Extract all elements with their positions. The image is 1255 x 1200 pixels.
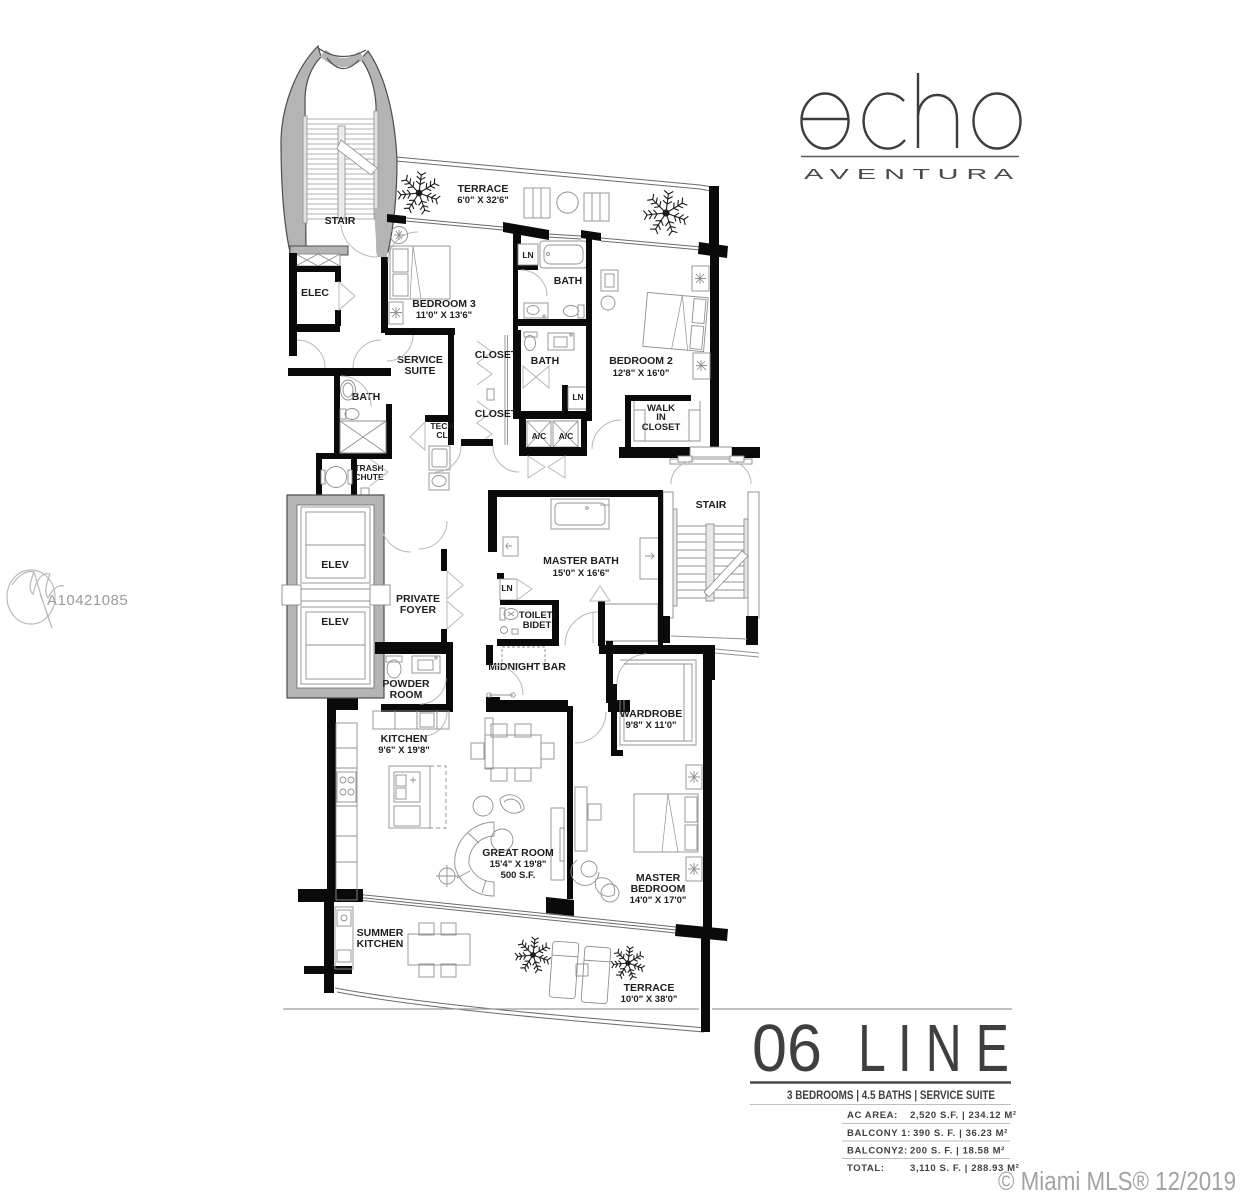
svg-text:A/C: A/C	[559, 431, 574, 441]
svg-text:BEDROOM 2: BEDROOM 2	[609, 355, 673, 367]
svg-text:STAIR: STAIR	[325, 215, 356, 227]
svg-text:SUITE: SUITE	[405, 365, 436, 377]
svg-text:ROOM: ROOM	[390, 689, 423, 701]
svg-text:L I N E: L I N E	[858, 1011, 1009, 1086]
svg-text:TOTAL:: TOTAL:	[847, 1163, 885, 1174]
svg-text:BALCONY2:: BALCONY2:	[847, 1146, 908, 1157]
svg-text:BIDET: BIDET	[523, 620, 552, 631]
svg-text:CHUTE: CHUTE	[354, 472, 384, 482]
svg-text:500 S.F.: 500 S.F.	[501, 870, 536, 881]
svg-text:11'0" X 13'6": 11'0" X 13'6"	[416, 310, 472, 321]
svg-text:CLOSET: CLOSET	[475, 408, 518, 420]
svg-text:A V E N T U R A: A V E N T U R A	[804, 167, 1014, 183]
svg-text:© Miami MLS® 12/2019: © Miami MLS® 12/2019	[998, 1168, 1236, 1196]
svg-text:15'0" X 16'6": 15'0" X 16'6"	[553, 568, 610, 579]
svg-text:LN: LN	[501, 583, 512, 593]
svg-text:A/C: A/C	[532, 431, 547, 441]
svg-text:WARDROBE: WARDROBE	[620, 708, 682, 720]
svg-text:AC AREA:: AC AREA:	[847, 1110, 898, 1121]
svg-text:15'4" X 19'8": 15'4" X 19'8"	[490, 859, 547, 870]
svg-text:BATH: BATH	[352, 391, 380, 403]
svg-text:MIDNIGHT BAR: MIDNIGHT BAR	[488, 661, 566, 673]
svg-text:GREAT ROOM: GREAT ROOM	[482, 847, 554, 859]
svg-text:LN: LN	[522, 250, 533, 260]
svg-text:BALCONY 1:: BALCONY 1:	[847, 1128, 911, 1139]
svg-text:390 S. F. | 36.23 M²: 390 S. F. | 36.23 M²	[913, 1128, 1008, 1139]
svg-text:06: 06	[752, 1011, 822, 1086]
svg-text:BEDROOM 3: BEDROOM 3	[412, 298, 476, 310]
svg-text:3 BEDROOMS | 4.5 BATHS | SERVI: 3 BEDROOMS | 4.5 BATHS | SERVICE SUITE	[787, 1090, 995, 1102]
svg-text:TERRACE: TERRACE	[458, 183, 509, 195]
svg-text:BATH: BATH	[531, 355, 559, 367]
svg-text:6'0" X 32'6": 6'0" X 32'6"	[457, 195, 509, 206]
svg-text:KITCHEN: KITCHEN	[381, 733, 428, 745]
svg-text:ELEV: ELEV	[321, 559, 348, 571]
svg-text:LN: LN	[572, 392, 583, 402]
svg-text:CL: CL	[436, 430, 447, 440]
svg-text:BEDROOM: BEDROOM	[631, 883, 686, 895]
svg-text:12'8" X 16'0": 12'8" X 16'0"	[613, 368, 670, 379]
svg-text:2,520 S.F. | 234.12 M²: 2,520 S.F. | 234.12 M²	[910, 1110, 1017, 1121]
svg-text:10'0" X 38'0": 10'0" X 38'0"	[621, 994, 678, 1005]
svg-text:14'0" X 17'0": 14'0" X 17'0"	[630, 895, 687, 906]
svg-text:STAIR: STAIR	[696, 499, 727, 511]
svg-text:ELEV: ELEV	[321, 616, 348, 628]
svg-text:FOYER: FOYER	[400, 604, 437, 616]
svg-text:CLOSET: CLOSET	[475, 349, 518, 361]
svg-text:CLOSET: CLOSET	[642, 422, 681, 433]
svg-text:A10421085: A10421085	[47, 592, 128, 609]
svg-text:KITCHEN: KITCHEN	[357, 938, 404, 950]
svg-text:9'6" X 19'8": 9'6" X 19'8"	[378, 745, 430, 756]
svg-text:TERRACE: TERRACE	[624, 982, 675, 994]
svg-text:BATH: BATH	[554, 275, 582, 287]
svg-text:200 S. F. | 18.58 M²: 200 S. F. | 18.58 M²	[910, 1146, 1005, 1157]
svg-text:ELEC: ELEC	[301, 287, 329, 299]
svg-text:9'8" X 11'0": 9'8" X 11'0"	[625, 720, 676, 731]
svg-text:MASTER BATH: MASTER BATH	[543, 555, 619, 567]
